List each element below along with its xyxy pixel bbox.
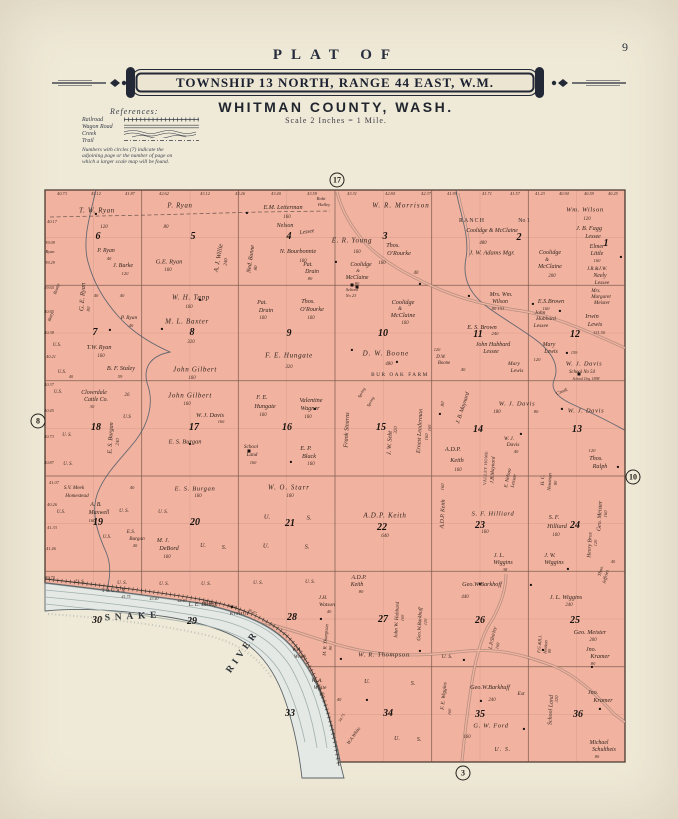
parcel-label: 160 (425, 433, 430, 440)
parcel-label: 160 (194, 494, 201, 499)
parcel-label: E.S. (127, 529, 135, 534)
parcel-label: 160 (401, 321, 408, 326)
parcel-label: 43.59 (307, 192, 317, 196)
parcel-label: J. Burke (113, 263, 133, 269)
building-mark (520, 433, 522, 435)
parcel-label: Cattle Co. (84, 397, 108, 403)
parcel-label: U. (364, 679, 370, 685)
building-mark (567, 568, 569, 570)
parcel-label: 120 (594, 540, 599, 547)
parcel-label: 43.40 (271, 192, 281, 196)
parcel-label: D. W. Boone (363, 351, 410, 358)
parcel-label: Wiggins (493, 560, 512, 566)
parcel-label: 80 (320, 693, 325, 698)
parcel-label: Est (517, 691, 524, 697)
parcel-label: U. S. (442, 654, 453, 660)
parcel-label: 43.12 (200, 192, 210, 196)
section-number: 2 (517, 233, 522, 243)
parcel-label: RIVER (225, 629, 261, 675)
parcel-label: B. F. Staley (107, 366, 135, 372)
parcel-label: 40 (120, 294, 125, 299)
parcel-label: 160 (441, 483, 446, 490)
parcel-label: F. E. Hungate (265, 353, 313, 360)
parcel-label: DeBord (159, 546, 178, 552)
parcel-label: 180 (493, 410, 500, 415)
page-reference-circle: 17 (330, 173, 345, 188)
parcel-label: 80 (308, 277, 313, 282)
section-number: 5 (191, 232, 196, 242)
parcel-label: Thos. (386, 243, 400, 249)
building-mark (161, 328, 163, 330)
parcel-label: U. S. (159, 582, 169, 587)
parcel-label: 40.87 (44, 461, 54, 465)
parcel-label: 80 (534, 410, 539, 415)
parcel-label: John Gilbert (173, 367, 217, 374)
parcel-label: 41.71 (482, 192, 492, 196)
parcel-label: Wiggins (544, 560, 563, 566)
parcel-label: 320 (285, 365, 292, 370)
parcel-label: Mrs. Wm. (490, 292, 513, 298)
parcel-label: J. W. Sebt (386, 431, 393, 456)
parcel-label: 40 (133, 544, 137, 548)
parcel-label: E. R. Young (332, 238, 373, 245)
parcel-label: 640 (381, 534, 389, 539)
parcel-label: E. P. (300, 446, 311, 452)
parcel-label: 40.37 (44, 383, 54, 387)
parcel-label: Coolidge (392, 300, 415, 306)
parcel-label: 120 (583, 217, 590, 222)
building-mark (419, 283, 421, 285)
parcel-label: 160 (283, 215, 290, 220)
building-mark (189, 443, 191, 445)
parcel-label: 120 (434, 348, 441, 352)
parcel-label: P. Ryan (121, 315, 138, 321)
parcel-label: 40 (129, 324, 134, 329)
parcel-label: SNAKE (105, 611, 162, 623)
parcel-label: White (314, 685, 327, 691)
parcel-label: A. B. (90, 502, 101, 508)
parcel-label: School No 54 (569, 370, 595, 375)
parcel-label: Geo.W.Barkhuff (470, 685, 510, 691)
parcel-label: 40 (337, 698, 342, 703)
parcel-label: 160 (304, 415, 311, 420)
parcel-label: S. (307, 515, 312, 522)
building-mark (95, 213, 97, 215)
parcel-label: John Gilbert (168, 393, 212, 400)
parcel-label: 40.45 (44, 409, 54, 413)
parcel-label: 34.75 (338, 713, 346, 723)
parcel-label: 160 (307, 316, 314, 321)
building-mark (532, 303, 534, 305)
parcel-label: Creek (556, 387, 569, 396)
building-mark (396, 361, 398, 363)
parcel-label: 38 (503, 568, 508, 573)
page-reference-circle: 3 (456, 766, 471, 781)
parcel-label: W. J. Davis (196, 413, 224, 419)
parcel-label: 160 (97, 354, 104, 359)
section-number: 16 (282, 423, 292, 433)
parcel-label: 160 (454, 468, 461, 473)
parcel-label: Maxwell (89, 510, 110, 516)
parcel-label: J. L. (494, 553, 504, 559)
parcel-label: 30 (90, 405, 95, 410)
parcel-label: 120 (534, 358, 541, 363)
parcel-label: 80 (595, 755, 599, 759)
building-mark (419, 650, 421, 652)
parcel-label: Elmer (590, 244, 605, 250)
parcel-label: 160 (552, 533, 559, 538)
parcel-label: Watson (319, 602, 335, 608)
parcel-label: J. B. Maynard (455, 391, 471, 424)
parcel-label: 42.40 (178, 599, 187, 603)
parcel-label: 240 (223, 258, 229, 266)
building-mark (109, 329, 111, 331)
parcel-label: 80 (554, 481, 559, 486)
parcel-label: W. J. Davis (499, 401, 536, 408)
building-mark (468, 295, 470, 297)
building-mark (480, 700, 482, 702)
parcel-label: Homestead (65, 493, 88, 498)
parcel-label: S. (222, 545, 227, 551)
parcel-label: 159 (571, 351, 578, 355)
parcel-label: 42.62 (159, 192, 169, 196)
parcel-label: 41.12 (91, 192, 101, 196)
parcel-label: 160 (307, 462, 314, 467)
parcel-label: Michael (589, 740, 608, 746)
parcel-label: TRUAX (102, 589, 127, 594)
parcel-label: 240 (115, 438, 120, 445)
parcel-label: 40.26 (47, 503, 57, 507)
parcel-label: U.S. (57, 510, 65, 515)
parcel-label: 160 (495, 642, 501, 649)
parcel-label: 160 (259, 316, 266, 321)
parcel-label: U.S. (54, 390, 62, 395)
section-number: 6 (96, 232, 101, 242)
section-number: 24 (570, 521, 580, 531)
parcel-label: Wagner (300, 406, 319, 412)
parcel-label: 40 (69, 375, 73, 379)
parcel-label: 160 (378, 261, 385, 266)
parcel-label: Coolidge & McClaine (466, 228, 518, 234)
section-number: 34 (383, 709, 393, 719)
parcel-label: W. J. Davis (568, 408, 605, 415)
parcel-label: E.M. Letterman (263, 205, 302, 211)
parcel-label: O'Rourke (387, 251, 411, 257)
parcel-label: U.S (123, 414, 131, 419)
parcel-label: 43.40 (150, 597, 159, 601)
parcel-label: Beatty (53, 283, 61, 295)
parcel-label: 41.87 (125, 192, 135, 196)
parcel-label: Nelson (277, 223, 294, 229)
parcel-label: 80 (359, 590, 364, 595)
parcel-label: 39.65 (44, 286, 54, 290)
parcel-label: J. L. Wiggins (550, 595, 582, 601)
parcel-label: F. E. (256, 395, 267, 401)
parcel-label: Little (591, 251, 604, 257)
parcel-label: Meister (594, 300, 610, 305)
parcel-label: Lessee (595, 280, 610, 286)
parcel-label: Drain (259, 308, 273, 314)
parcel-label: 160 (218, 420, 224, 424)
parcel-label: Pat. (257, 300, 267, 306)
parcel-label: Newman (547, 473, 553, 491)
parcel-label: Spring (357, 387, 366, 399)
parcel-label: 40.25 (608, 192, 618, 196)
parcel-label: 160 (428, 425, 433, 432)
parcel-label: Lessee (299, 228, 314, 235)
parcel-label: 40.17 (47, 220, 57, 224)
parcel-label: 40 (107, 257, 112, 262)
parcel-label: A.D.P. Keith (363, 513, 406, 520)
section-number: 15 (376, 423, 386, 433)
building-mark (290, 461, 292, 463)
parcel-label: A.D.P. (352, 575, 367, 581)
parcel-label: 160 (448, 709, 453, 716)
parcel-label: BUR OAK FARM (371, 372, 429, 377)
parcel-label: U. S. (62, 433, 71, 438)
parcel-label: S. (417, 737, 421, 743)
parcel-label: Davis (507, 442, 520, 448)
parcel-label: O'Rourke (300, 307, 324, 313)
parcel-label: 40 (327, 610, 332, 615)
parcel-label: T.W. Ryan (87, 345, 112, 351)
parcel-label: 43.26 (235, 192, 245, 196)
section-number: 35 (475, 710, 485, 720)
section-number: 21 (285, 519, 295, 529)
parcel-label: 41.95 (447, 192, 457, 196)
map-labels-layer: 40.7341.1241.8742.6243.1243.2643.4043.59… (0, 0, 678, 819)
parcel-label: Frank Stearns (343, 412, 351, 448)
section-number: 7 (93, 328, 98, 338)
parcel-label: Coolidge (350, 262, 371, 268)
parcel-label: Robt (317, 197, 326, 202)
parcel-label: 200 (589, 638, 596, 643)
parcel-label: Thos. (589, 456, 603, 462)
parcel-label: 41.07 (49, 481, 59, 485)
parcel-label: 42.37 (421, 192, 431, 196)
section-number: 13 (572, 425, 582, 435)
parcel-label: W. R. Thompson (358, 652, 409, 659)
parcel-label: W. O. Starr (268, 485, 310, 492)
section-number: 18 (91, 423, 101, 433)
parcel-label: S. F. Hilliard (472, 511, 515, 518)
building-mark (559, 310, 561, 312)
parcel-label: U. S. (201, 582, 211, 587)
parcel-label: W.A. (292, 647, 302, 652)
section-number: 12 (570, 330, 580, 340)
parcel-label: 40.94 (559, 192, 569, 196)
parcel-label: McClaine (346, 275, 369, 281)
parcel-label: Hilliard (547, 524, 567, 530)
parcel-label: P. Ryan (97, 248, 115, 254)
parcel-label: U. S. (494, 747, 511, 753)
parcel-label: Halley (318, 203, 330, 208)
section-number: 9 (287, 329, 292, 339)
section-number: 10 (378, 329, 388, 339)
section-number: 4 (287, 232, 292, 242)
parcel-label: J. B. Fagg (576, 226, 602, 232)
parcel-label: School Org. 1898 (573, 377, 600, 381)
parcel-label: W. A. (311, 678, 322, 684)
parcel-label: 43.31 (347, 192, 357, 196)
parcel-label: Mary (543, 342, 556, 348)
parcel-label: Schultheis (592, 747, 616, 753)
building-mark (351, 284, 354, 287)
parcel-label: Lessee (483, 349, 498, 355)
parcel-label: 480 (385, 362, 392, 367)
parcel-label: McClaine (391, 313, 415, 319)
parcel-label: D.W. (436, 355, 445, 360)
parcel-label: 59 (118, 375, 123, 380)
building-mark (620, 256, 622, 258)
parcel-label: W. R. Morrison (372, 203, 430, 210)
section-number: 26 (475, 616, 485, 626)
parcel-label: 80 (253, 265, 258, 270)
parcel-label: 41.23 (535, 192, 545, 196)
parcel-label: Cloverdale (81, 390, 107, 396)
section-number: 1 (604, 239, 609, 249)
parcel-label: 39.29 (45, 261, 55, 265)
page-reference-circle: 8 (31, 414, 46, 429)
parcel-label: W. H. Tapp (172, 295, 210, 302)
parcel-label: 240 (488, 698, 495, 703)
parcel-label: E. S. Burgan (169, 439, 202, 446)
parcel-label: Lessee (585, 234, 600, 240)
section-number: 25 (570, 616, 580, 626)
building-mark (578, 373, 581, 376)
parcel-label: RANCH (459, 218, 485, 224)
parcel-label: U.S. (58, 370, 66, 375)
parcel-label: Irwin (585, 314, 598, 320)
section-number: 28 (287, 613, 297, 623)
building-mark (463, 659, 465, 661)
parcel-label: F. E. Wiggins (440, 682, 448, 710)
parcel-label: 26 (125, 393, 130, 398)
building-mark (320, 618, 322, 620)
parcel-label: Drain (305, 269, 319, 275)
parcel-label: W. J. Davis (566, 361, 603, 368)
parcel-label: M. R. Thompson (322, 624, 330, 656)
parcel-label: 40.59 (584, 192, 594, 196)
plat-page: 9 PLAT OF TOWNSHIP 13 NORTH, RANGE 44 EA… (0, 0, 678, 819)
section-number: 3 (383, 232, 388, 242)
parcel-label: 440 (461, 595, 468, 600)
parcel-label: 40.73 (57, 192, 67, 196)
section-number: 17 (189, 423, 199, 433)
parcel-label: 160 (286, 494, 293, 499)
parcel-label: Boone (438, 361, 450, 366)
building-mark (366, 699, 368, 701)
parcel-label: 160 (353, 250, 360, 255)
building-mark (561, 408, 563, 410)
parcel-label: M. L. Baxter (165, 319, 209, 326)
building-mark (246, 212, 248, 214)
parcel-label: U.S. (103, 535, 111, 540)
building-mark (231, 606, 233, 608)
parcel-label: 160 (259, 413, 266, 418)
parcel-label: M. J. (157, 538, 169, 544)
parcel-label: 40 (130, 486, 135, 491)
parcel-label: Ryan (46, 250, 55, 254)
building-mark (335, 261, 337, 263)
parcel-label: 80 151 (492, 307, 505, 312)
parcel-label: 40.21 (46, 355, 56, 359)
parcel-label: Wilson (492, 299, 508, 305)
parcel-label: 120 (100, 225, 108, 230)
parcel-label: 40.38 (44, 331, 54, 335)
parcel-label: J.H. (319, 595, 328, 600)
parcel-label: 320 (393, 426, 398, 433)
parcel-label: A.D.P. (445, 447, 461, 453)
parcel-label: U. S. (119, 509, 129, 514)
parcel-label: Batty (47, 312, 54, 322)
building-mark (248, 450, 251, 453)
parcel-label: Black (302, 454, 316, 460)
building-mark (314, 408, 316, 410)
parcel-label: Wm. Wilson (566, 207, 604, 214)
parcel-label: 41.46 (46, 547, 56, 551)
parcel-label: 42.84 (385, 192, 395, 196)
parcel-label: Hubbard (536, 316, 556, 322)
building-mark (340, 658, 342, 660)
building-mark (439, 413, 441, 415)
parcel-label: 160 (401, 615, 406, 622)
parcel-label: E.S.Brown (538, 299, 564, 305)
parcel-label: 120 (424, 619, 429, 626)
parcel-label: U. (394, 736, 400, 742)
parcel-label: Valentine (299, 398, 322, 404)
parcel-label: 40 (514, 450, 519, 455)
parcel-label: 200 (548, 274, 555, 279)
parcel-label: 480 (479, 241, 486, 246)
parcel-label: 80 (164, 225, 169, 230)
parcel-label: Neely (593, 273, 606, 279)
parcel-label: L. E. Bishop (189, 602, 218, 608)
section-number: 14 (473, 425, 483, 435)
parcel-label: 40 (94, 294, 99, 299)
parcel-label: 40 (461, 368, 466, 373)
parcel-label: 160 (164, 268, 171, 273)
parcel-label: U. S. (253, 581, 263, 586)
parcel-label: Coolidge (539, 250, 561, 256)
parcel-label: U. S. (63, 462, 72, 467)
parcel-label: 40 (414, 271, 419, 276)
building-mark (523, 728, 525, 730)
parcel-label: & (545, 258, 549, 263)
parcel-label: Spring (366, 396, 375, 408)
parcel-label: S. (305, 544, 310, 551)
section-number: 23 (475, 521, 485, 531)
parcel-label: Geo.W.Barkhoff (462, 582, 502, 588)
parcel-label: 80 (329, 646, 334, 651)
parcel-label: Lewis (544, 349, 558, 355)
parcel-label: 120 (122, 272, 129, 277)
parcel-label: S.V. Meek (64, 485, 84, 490)
parcel-label: J. W. Adams Mgr. (469, 250, 515, 257)
parcel-label: S. (411, 681, 416, 687)
parcel-label: 160 (250, 461, 257, 465)
parcel-label: Jno. (588, 690, 598, 696)
parcel-label: Jno. (586, 647, 596, 653)
section-number: 36 (573, 710, 583, 720)
parcel-label: 40.73 (44, 435, 54, 439)
parcel-label: G. W. Ford (473, 723, 508, 730)
parcel-label: 240 (492, 332, 499, 337)
parcel-label: 80 (548, 649, 553, 654)
parcel-label: 120 (589, 449, 596, 454)
parcel-label: Kramer (590, 654, 609, 660)
parcel-label: Hungate (254, 404, 275, 410)
